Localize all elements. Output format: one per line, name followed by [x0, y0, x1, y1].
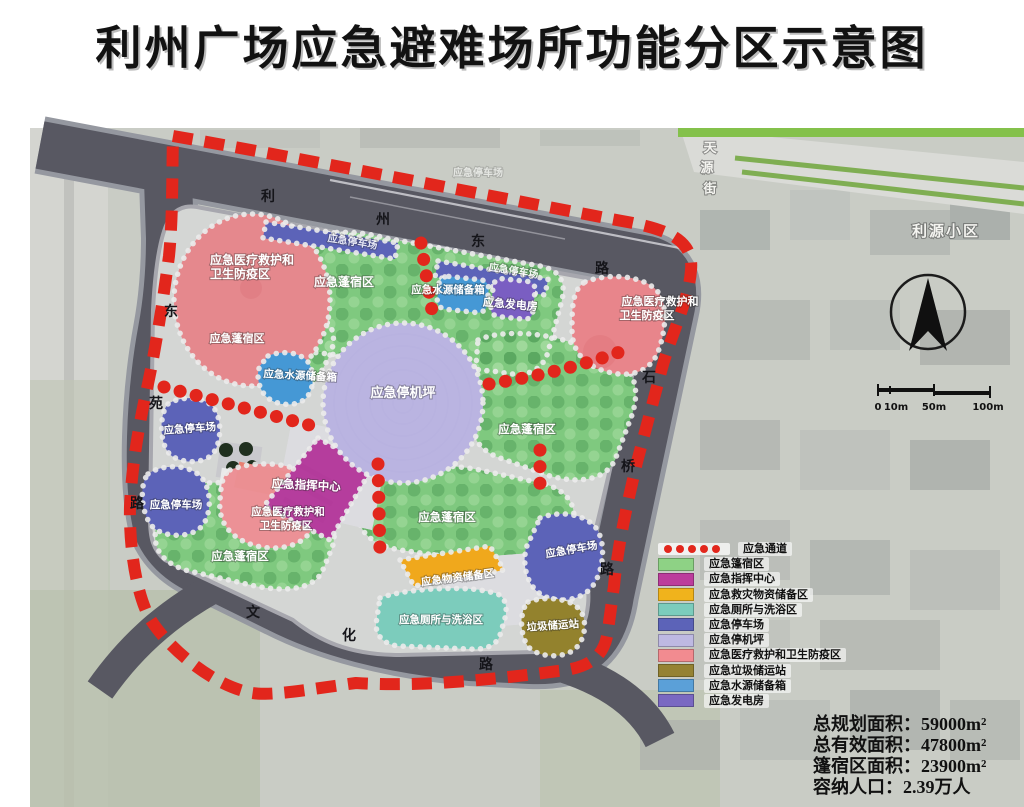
legend-row: 应急救灾物资储备区: [658, 589, 846, 601]
road-bottom-char1: 化: [342, 627, 356, 644]
road-left-char1: 苑: [148, 396, 163, 412]
label-tent-bc: 应急蓬宿区: [418, 510, 476, 524]
legend-label: 应急垃圾储运站: [704, 664, 791, 678]
legend-label: 应急指挥中心: [704, 572, 780, 586]
label-parking-faint: 应急停车场: [453, 166, 503, 179]
zone-helipad: [323, 323, 483, 483]
label-medical-tl-1: 应急医疗救护和: [210, 252, 294, 267]
legend-row: 应急停机坪: [658, 634, 846, 646]
legend-swatch: [658, 588, 694, 601]
site-statistics: 总规划面积：59000m² 总有效面积：47800m² 篷宿区面积：23900m…: [813, 714, 986, 798]
road-left-char2: 路: [130, 495, 145, 512]
road-bottom-char0: 文: [246, 604, 261, 621]
legend-row: 应急停车场: [658, 619, 846, 631]
stat-line: 容纳人口：2.39万人: [813, 777, 986, 798]
street-yuanjie-char1: 源: [700, 160, 713, 176]
label-medical-tl-2: 卫生防疫区: [210, 266, 270, 281]
label-tent-midright: 应急蓬宿区: [498, 422, 556, 436]
legend-swatch: [658, 558, 694, 571]
legend-label: 应急通道: [738, 542, 792, 556]
stat-line: 总规划面积：59000m²: [813, 714, 986, 735]
street-yuanjie-char2: 街: [702, 181, 716, 197]
legend-row: 应急垃圾储运站: [658, 665, 846, 677]
legend-passage-dots-icon: [658, 543, 730, 555]
site-map: 应急医疗救护和 卫生防疫区 应急蓬宿区 应急停车场 应急停车场 应急水源储备箱 …: [0, 0, 1024, 807]
legend-row: 应急水源储备箱: [658, 680, 846, 692]
stat-line: 总有效面积：47800m²: [813, 735, 986, 756]
legend-swatch: [658, 679, 694, 692]
legend-row: 应急发电房: [658, 695, 846, 707]
label-medical-b-2: 卫生防疫区: [260, 519, 313, 532]
label-medical-tr-1: 应急医疗救护和: [622, 294, 699, 308]
legend-swatch: [658, 664, 694, 677]
road-left-char0: 东: [164, 303, 178, 320]
label-water-top: 应急水源储备箱: [411, 283, 485, 296]
legend-row: 应急篷宿区: [658, 558, 846, 570]
road-top-char3: 路: [595, 260, 610, 277]
label-toilet: 应急厕所与洗浴区: [399, 613, 483, 626]
page: 利州广场应急避难场所功能分区示意图: [0, 0, 1024, 807]
legend-label: 应急篷宿区: [704, 557, 769, 571]
map-legend: 应急通道 应急篷宿区 应急指挥中心 应急救灾物资储备区 应急厕所与洗浴区 应急停…: [658, 543, 846, 707]
label-medical-tr-2: 卫生防疫区: [620, 308, 675, 322]
legend-label: 应急救灾物资储备区: [704, 588, 813, 602]
road-top-char0: 利: [261, 188, 275, 205]
scale-tick-3: 100m: [972, 402, 1003, 413]
legend-label: 应急水源储备箱: [704, 679, 791, 693]
legend-label: 应急停机坪: [704, 633, 769, 647]
scale-tick-0: 0: [875, 402, 882, 413]
scale-tick-1: 10m: [884, 402, 908, 413]
legend-swatch: [658, 634, 694, 647]
legend-label: 应急医疗救护和卫生防疫区: [704, 648, 846, 662]
legend-label: 应急厕所与洗浴区: [704, 603, 802, 617]
street-yuanjie-char0: 天: [703, 141, 717, 156]
legend-swatch: [658, 649, 694, 662]
road-bottom-char2: 路: [479, 656, 494, 673]
road-top-char2: 东: [471, 233, 485, 250]
stat-line: 篷宿区面积：23900m²: [813, 756, 986, 777]
label-helipad: 应急停机坪: [370, 385, 435, 401]
label-tent-left: 应急蓬宿区: [210, 331, 265, 345]
legend-label: 应急停车场: [704, 618, 769, 632]
legend-swatch: [658, 573, 694, 586]
legend-swatch: [658, 694, 694, 707]
road-right-char0: 石: [641, 370, 656, 386]
road-right-char2: 路: [600, 561, 615, 578]
label-parking-l2: 应急停车场: [150, 498, 203, 511]
legend-row: 应急指挥中心: [658, 573, 846, 585]
road-top-char1: 州: [375, 212, 390, 228]
scale-tick-2: 50m: [922, 402, 946, 413]
label-tent-top: 应急蓬宿区: [314, 274, 374, 289]
road-right-char1: 桥: [621, 458, 636, 475]
liyuan-area-label: 利源小区: [912, 222, 980, 240]
legend-row: 应急医疗救护和卫生防疫区: [658, 649, 846, 661]
legend-row: 应急厕所与洗浴区: [658, 604, 846, 616]
legend-swatch: [658, 603, 694, 616]
label-tent-bl: 应急蓬宿区: [211, 549, 269, 563]
legend-swatch: [658, 618, 694, 631]
legend-row-passage: 应急通道: [658, 543, 846, 555]
legend-label: 应急发电房: [704, 694, 769, 708]
label-medical-b-1: 应急医疗救护和: [251, 505, 325, 518]
